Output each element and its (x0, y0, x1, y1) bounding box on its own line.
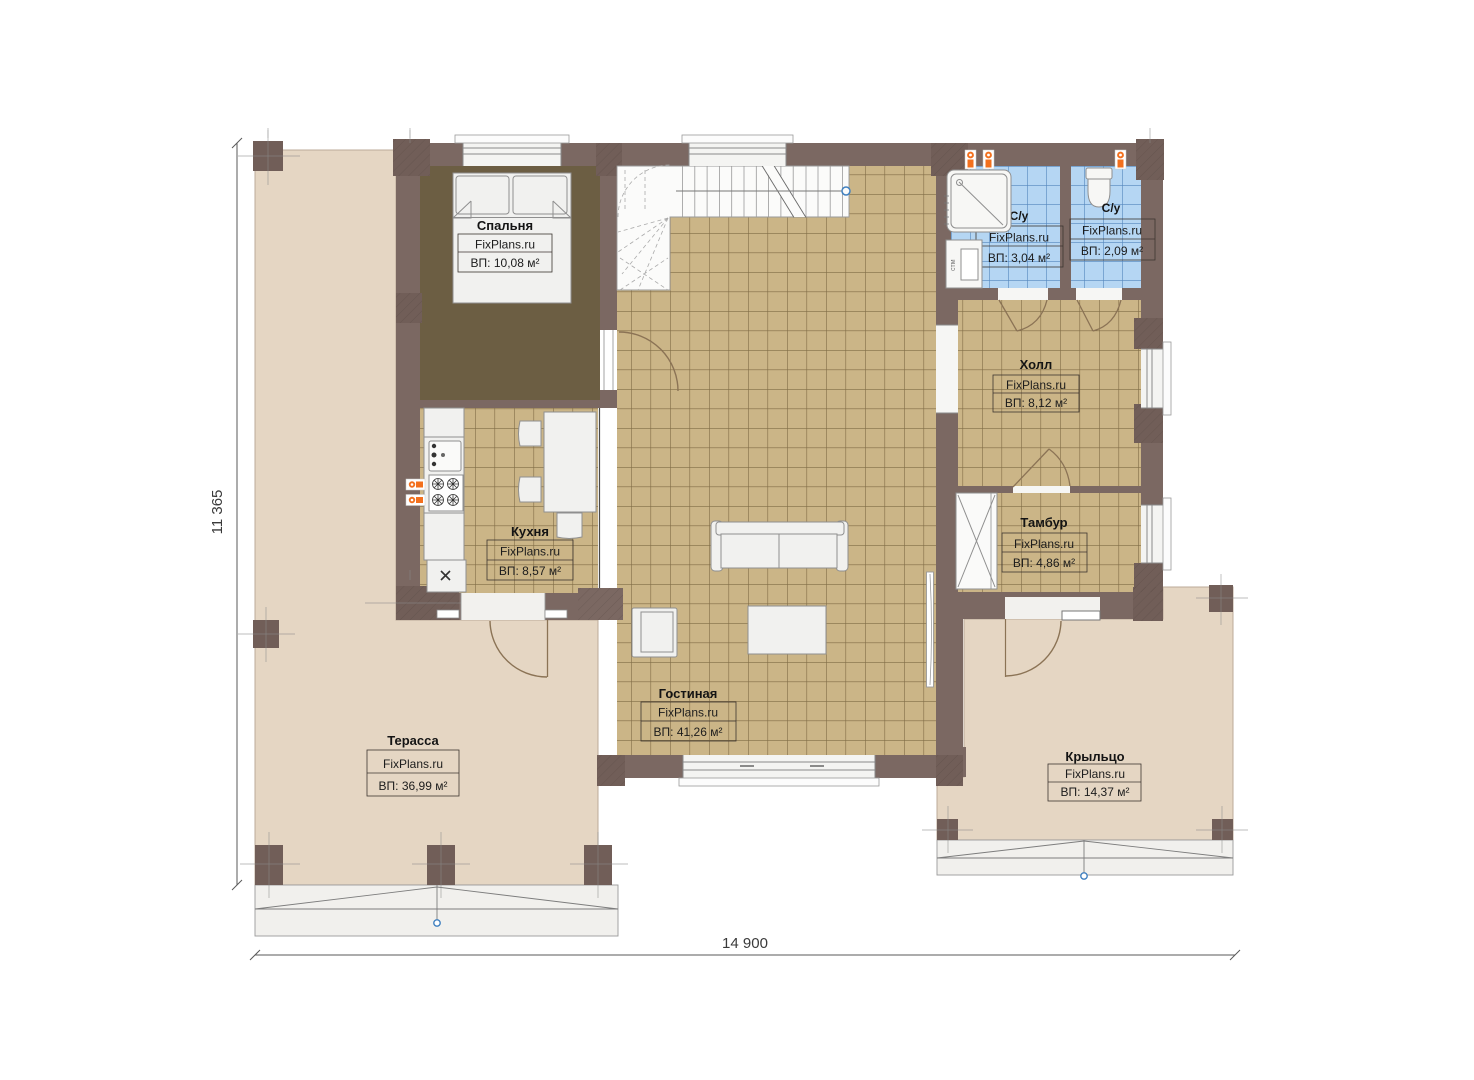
svg-text:ВП: 10,08 м²: ВП: 10,08 м² (471, 256, 540, 270)
svg-text:FixPlans.ru: FixPlans.ru (658, 706, 718, 720)
svg-text:FixPlans.ru: FixPlans.ru (1065, 767, 1125, 781)
svg-text:FixPlans.ru: FixPlans.ru (1082, 224, 1142, 238)
svg-text:FixPlans.ru: FixPlans.ru (989, 231, 1049, 245)
svg-text:FixPlans.ru: FixPlans.ru (1006, 378, 1066, 392)
svg-text:Гостиная: Гостиная (659, 686, 718, 701)
svg-text:Кухня: Кухня (511, 524, 549, 539)
svg-text:14 900: 14 900 (722, 935, 768, 952)
svg-text:С/у: С/у (1102, 201, 1121, 215)
svg-text:Крыльцо: Крыльцо (1065, 749, 1124, 764)
svg-text:Спальня: Спальня (477, 218, 533, 233)
svg-text:FixPlans.ru: FixPlans.ru (1014, 537, 1074, 551)
svg-text:Терасса: Терасса (387, 733, 439, 748)
svg-text:11 365: 11 365 (209, 490, 226, 535)
svg-text:ВП: 36,99 м²: ВП: 36,99 м² (379, 779, 448, 793)
svg-text:ВП: 3,04 м²: ВП: 3,04 м² (988, 251, 1050, 265)
svg-text:Холл: Холл (1020, 357, 1053, 372)
svg-text:С/у: С/у (1010, 209, 1029, 223)
svg-text:ВП: 14,37 м²: ВП: 14,37 м² (1061, 785, 1130, 799)
svg-text:ВП: 8,57 м²: ВП: 8,57 м² (499, 564, 561, 578)
svg-text:FixPlans.ru: FixPlans.ru (500, 545, 560, 559)
svg-text:ВП: 41,26 м²: ВП: 41,26 м² (654, 725, 723, 739)
svg-text:стм: стм (950, 259, 957, 271)
svg-text:ВП: 4,86 м²: ВП: 4,86 м² (1013, 556, 1075, 570)
svg-text:Тамбур: Тамбур (1020, 515, 1067, 530)
svg-text:FixPlans.ru: FixPlans.ru (383, 757, 443, 771)
svg-text:FixPlans.ru: FixPlans.ru (475, 238, 535, 252)
svg-text:ВП: 2,09 м²: ВП: 2,09 м² (1081, 244, 1143, 258)
svg-text:ВП: 8,12 м²: ВП: 8,12 м² (1005, 396, 1067, 410)
